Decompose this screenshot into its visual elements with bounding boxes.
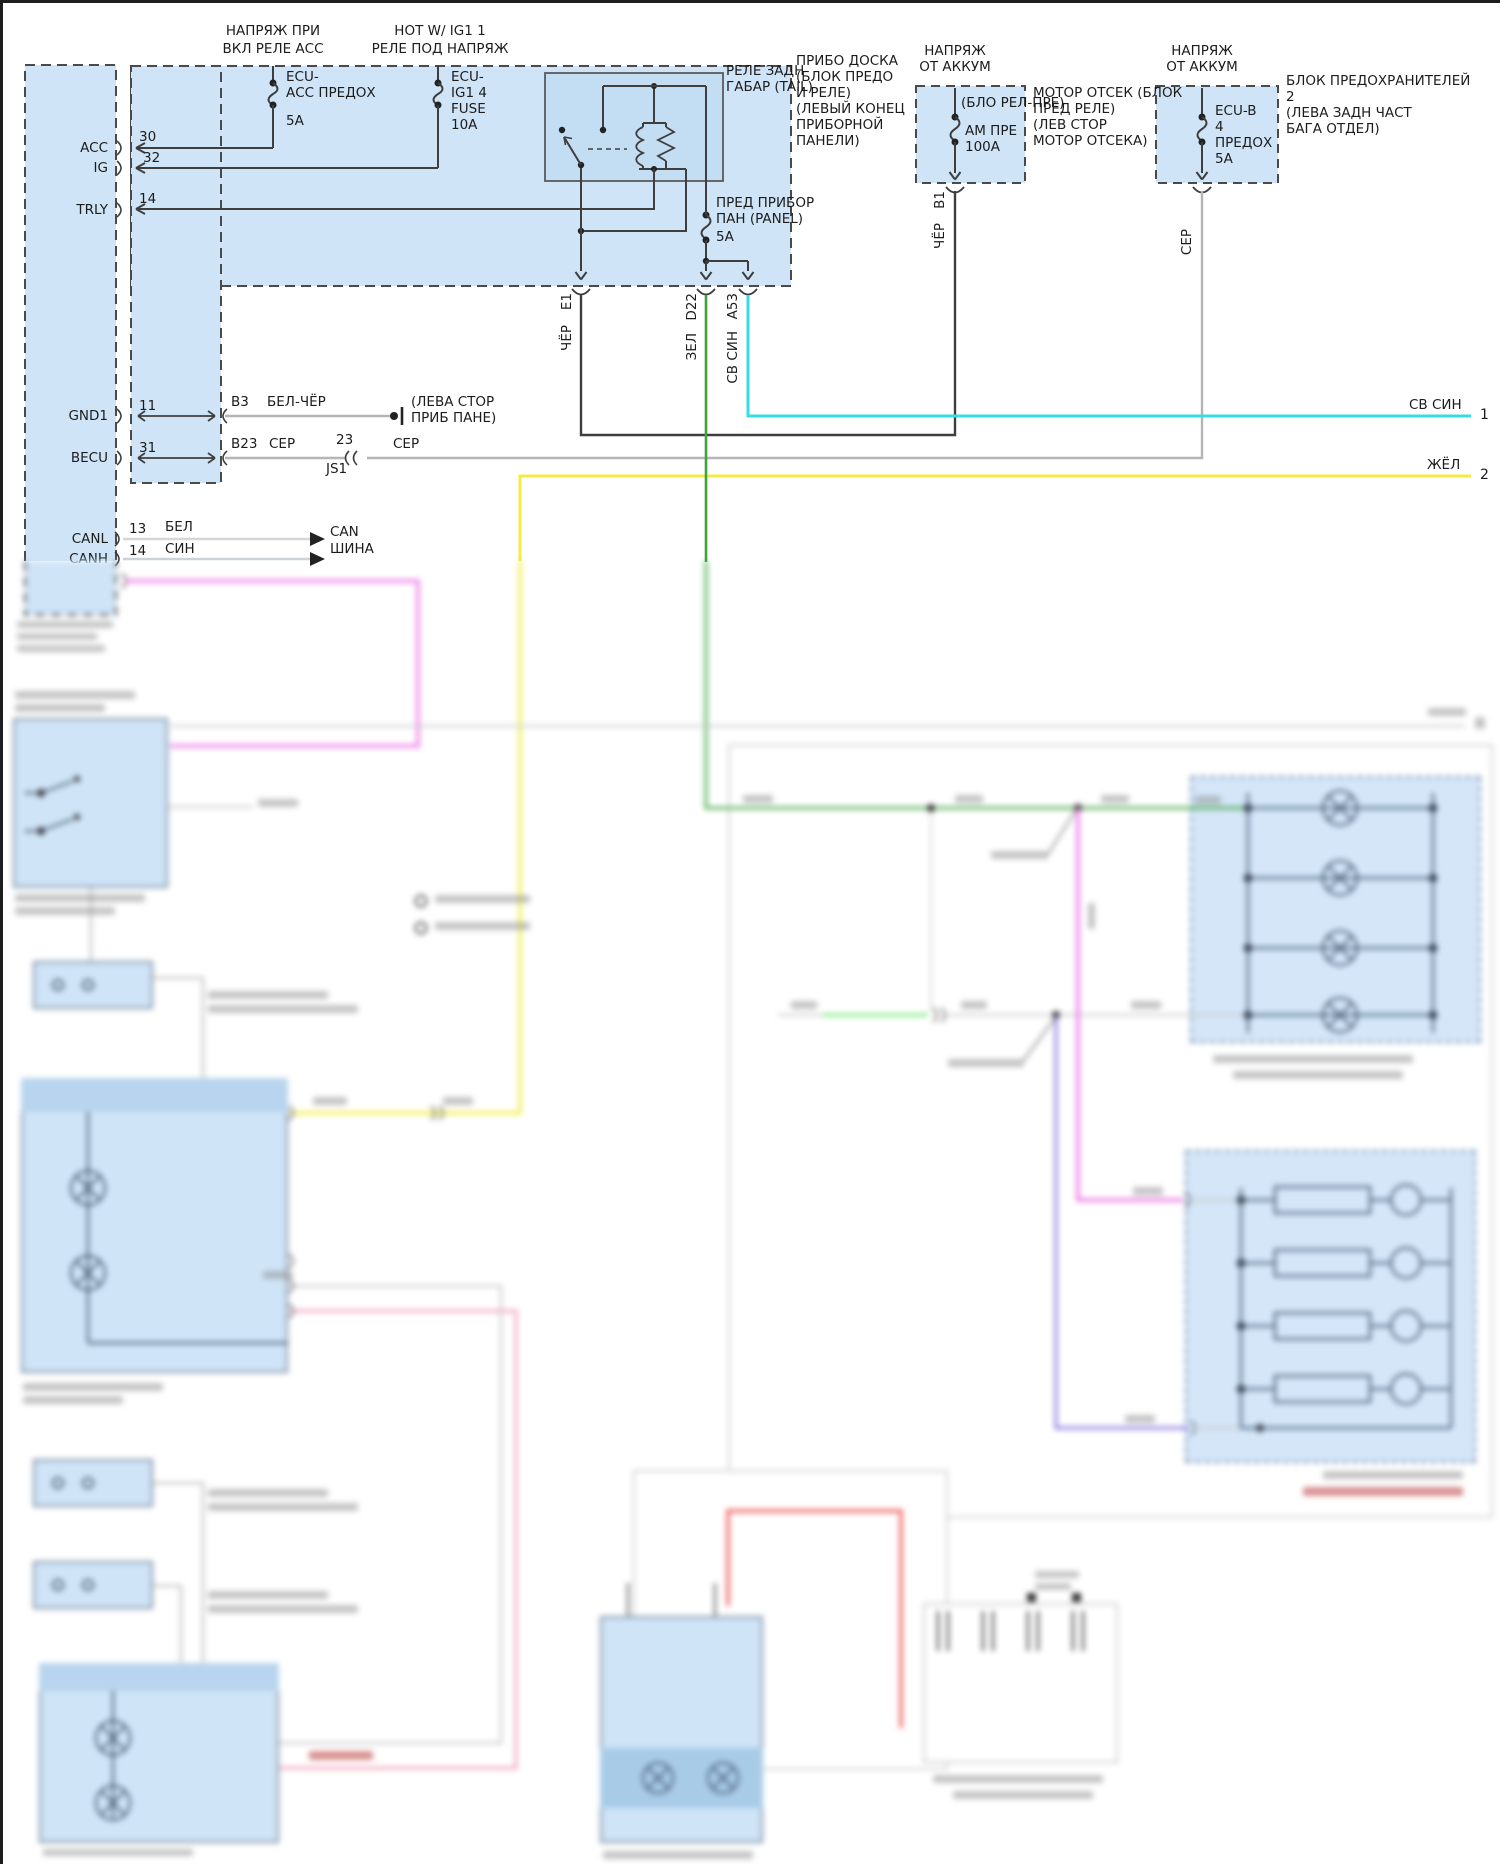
blurred-text [1428,708,1466,716]
blur-wires-svg [3,3,1500,1864]
blurred-lower-region [3,3,1500,1864]
blurred-text [743,795,773,803]
wiring-diagram-page: НАПРЯЖ ПРИ ВКЛ РЕЛЕ АСС HOT W/ IG1 1 РЕЛ… [0,0,1500,1864]
blurred-text [23,1396,123,1404]
blurred-text [208,1605,358,1613]
blurred-text [1131,1001,1161,1009]
red-wire [728,1511,901,1728]
pink-wire [125,581,418,746]
blurred-annotation [948,1059,1024,1067]
blurred-text [435,895,530,903]
blurred-text [1035,1583,1071,1590]
blurred-caption [953,1791,1093,1799]
blurred-caption [1233,1071,1403,1079]
yellow-wire-lower [291,561,520,1113]
blurred-text [15,704,105,712]
blurred-text [435,922,530,930]
blurred-text [955,795,983,803]
blurred-text [23,1383,163,1391]
blurred-text [263,1271,293,1279]
blurred-red-text [309,1751,373,1760]
blurred-text [961,1001,987,1009]
blurred-text [208,1503,358,1511]
blurred-text [208,991,328,999]
blurred-text [17,621,113,628]
blurred-text [1133,1187,1163,1195]
blurred-caption [603,1851,753,1859]
blurred-text [258,799,298,807]
blurred-text [15,691,135,699]
blurred-annotation [991,851,1047,859]
blurred-text [208,1489,328,1497]
blurred-text [208,1005,358,1013]
blurred-watermark [43,1849,193,1856]
blurred-text [17,633,97,640]
blurred-text [1125,1415,1155,1423]
blurred-text [313,1097,347,1105]
blurred-text [15,894,145,902]
blurred-ref-number [1475,717,1485,729]
blurred-text [1101,795,1129,803]
blurred-text [791,1001,817,1009]
blurred-caption [1323,1471,1463,1479]
green-wire-lower [706,561,1248,808]
blurred-text [1195,796,1221,804]
blurred-red-caption [1303,1487,1463,1496]
blurred-caption [933,1775,1103,1783]
blurred-text [17,645,105,652]
blurred-caption [1213,1055,1413,1063]
blurred-text [1035,1571,1079,1578]
salmon-wire [279,1311,516,1768]
gray-wire-left [279,1286,501,1743]
blurred-text [15,907,115,915]
blurred-text [208,1591,328,1599]
purple-wire [1056,1015,1188,1428]
blurred-vertical-label [1088,903,1095,929]
blurred-text [443,1097,473,1105]
